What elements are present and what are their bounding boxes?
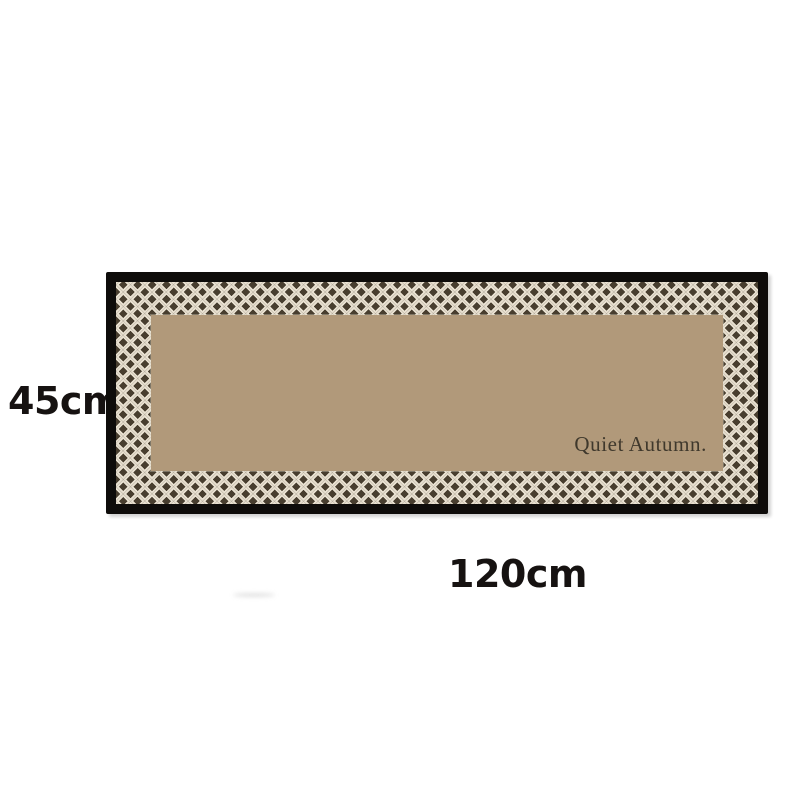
shadow-artifact [233,593,275,597]
rug-center-field: Quiet Autumn. [151,315,723,471]
rug-lattice-border: Quiet Autumn. [116,282,758,504]
rug: Quiet Autumn. [106,272,768,514]
product-size-diagram: 45cm Quiet Autumn. 120cm [0,0,800,800]
height-dimension-label: 45cm [8,381,121,423]
width-dimension-label: 120cm [448,554,587,596]
rug-brand-text: Quiet Autumn. [574,432,707,457]
